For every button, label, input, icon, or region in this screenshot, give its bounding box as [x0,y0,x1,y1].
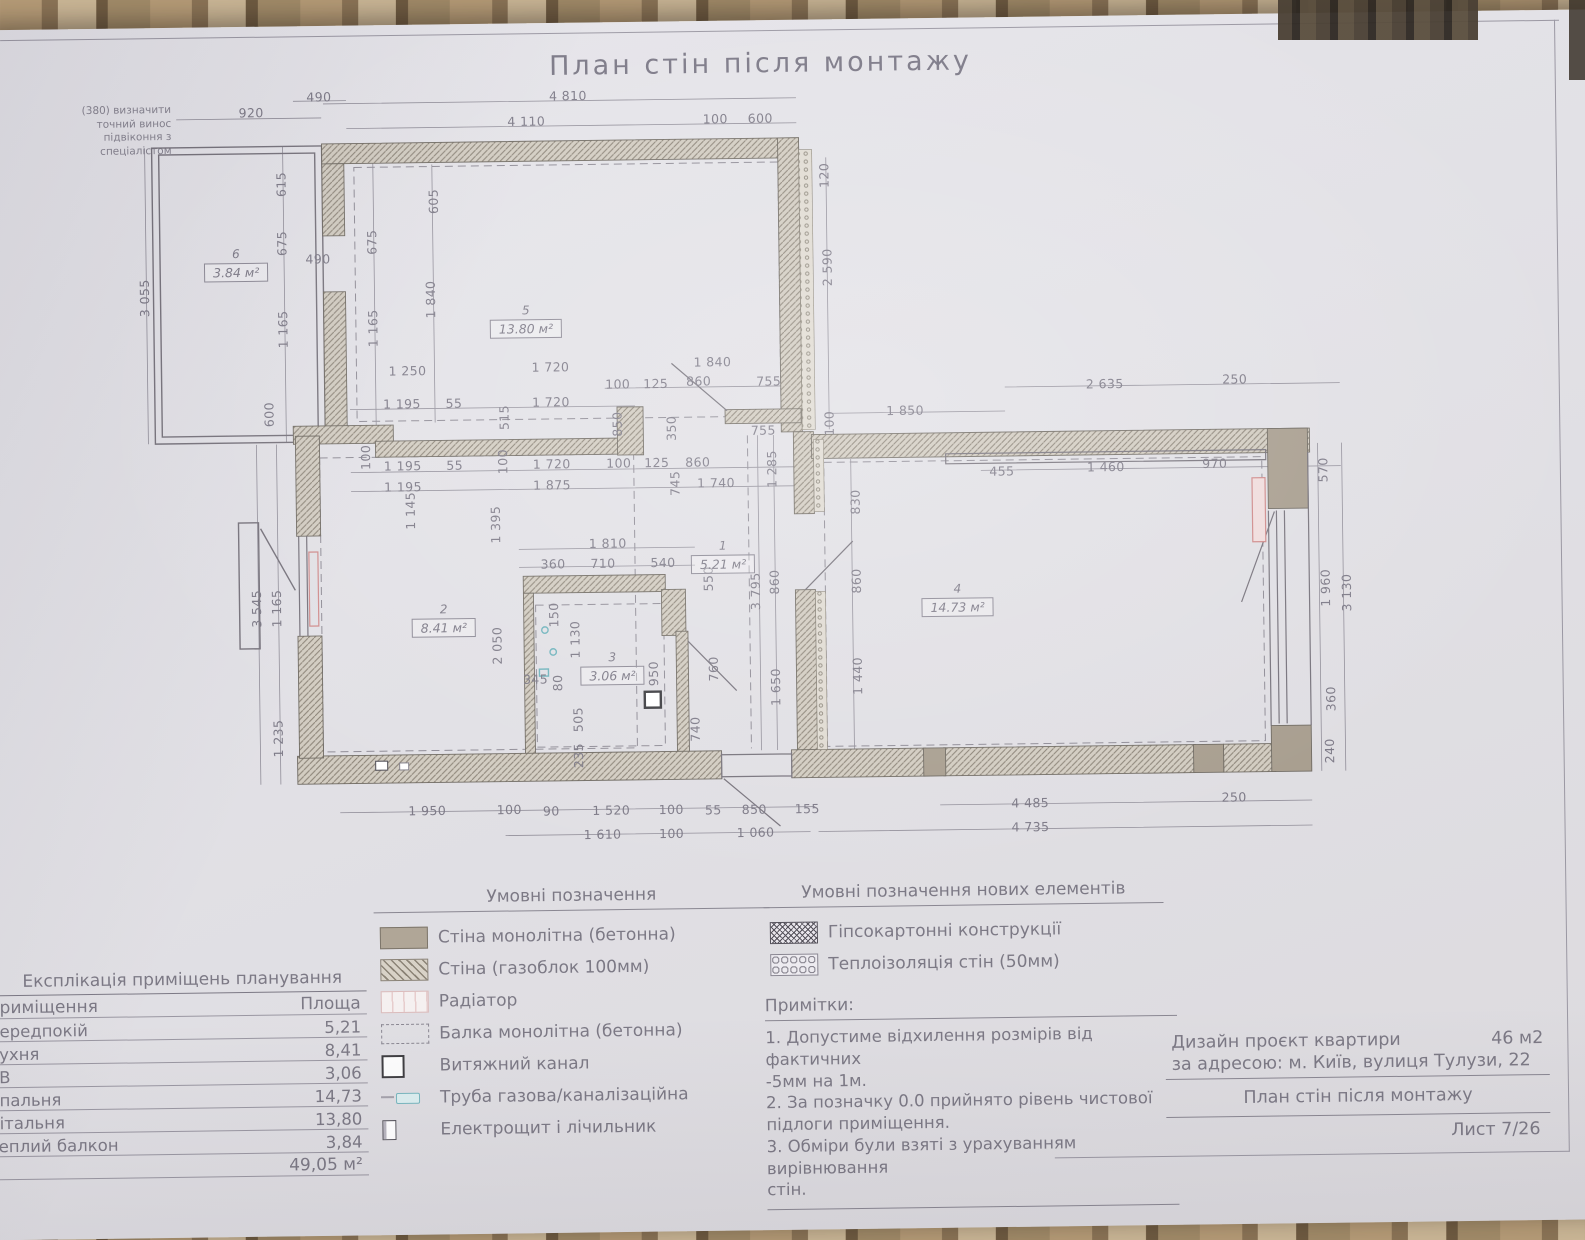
dimension-lines [144,88,1347,841]
room-number: 2 [411,602,475,617]
photo-of-floor-plan-sheet: { "title": "План стін після монтажу", "c… [0,0,1585,1200]
dimension-label: 1 235 [271,720,286,758]
dimension-label: 540 [650,555,675,570]
legend-swatch-cell [376,1119,440,1140]
gas-pipe-icons [539,627,557,676]
room-area-cell: 3,06 [325,1063,362,1082]
legend-swatch-cell [375,1023,439,1044]
dimension-label: 1 520 [592,802,630,817]
dimension-label: 755 [751,423,776,438]
dimension-label: 3 130 [1339,574,1354,612]
dimension-label: 100 [822,411,837,436]
room-name-cell: Кухня [0,1045,40,1065]
dimension-label: 250 [1222,789,1247,804]
room-name-cell: Спальня [0,1090,62,1110]
notes-lines: 1. Допустиме відхилення розмірів від фак… [765,1022,1179,1202]
dimension-label: 1 810 [589,535,627,550]
dimension-label: 860 [767,569,782,594]
legend-item-label: Балка монолітна (бетонна) [439,1020,683,1043]
legend-swatch-cell [374,958,438,981]
dimension-label: 1 060 [737,825,775,840]
dimension-label: 850 [742,802,767,817]
dimension-label: 1 395 [488,506,503,544]
table-rows: Передпокій5,21Кухня8,41СВ3,06Спальня14,7… [0,1014,369,1157]
sheet-content: План стін після монтажу (380) визначити … [0,0,1585,1200]
dimension-label: 100 [659,802,684,817]
notes-title: Примітки: [765,991,1177,1021]
dimension-label: 3 545 [249,590,264,628]
legend-new-items: Гіпсокартонні конструкціїТеплоізоляція с… [764,912,1165,981]
room-area: 3.84 м² [204,263,268,283]
electric-panel-icons [376,761,409,770]
dimension-label: 675 [364,230,379,255]
room-area-cell: 8,41 [325,1041,362,1060]
legend-item-label: Труба газова/каналізаційна [440,1084,689,1107]
room-name-cell: Теплий балкон [0,1136,119,1157]
dimension-label: 490 [306,89,331,104]
room-number: 3 [580,650,644,665]
room-name-cell: Передпокій [0,1021,88,1041]
insulation-swatch-icon [770,954,818,977]
dimension-label: 740 [688,716,703,741]
dimension-label: 1 460 [1087,459,1125,474]
dimension-label: 1 195 [383,396,421,411]
dimension-label: 120 [816,163,831,188]
room-area: 14.73 м² [921,597,993,617]
dimension-label: 1 250 [389,363,427,378]
dimension-label: 250 [1222,371,1247,386]
corner-note: (380) визначити точний винос підвіконня … [63,104,172,160]
dimension-label: 505 [570,707,585,732]
dimension-label: 745 [667,471,682,496]
dimension-label: 100 [358,445,373,470]
legend-swatch-cell [764,953,828,976]
dimension-label: 950 [646,661,661,686]
legend-item: Стіна (газоблок 100мм) [374,949,770,986]
room-number: 1 [691,538,755,553]
dimension-label: 1 610 [584,827,622,842]
dimension-label: 80 [550,674,565,691]
radiator-swatch-icon [381,991,429,1014]
legend-items: Стіна монолітна (бетонна)Стіна (газоблок… [374,917,773,1146]
insulation-strips [799,149,828,749]
dimension-label: 55 [445,396,462,411]
dimension-label: 345 [523,672,548,687]
legend-swatch-cell [376,1092,440,1104]
title-block: Дизайн проєкт квартири 46 м2 за адресою:… [1165,1028,1550,1144]
room-area-cell: 3,84 [326,1132,363,1151]
windows-and-doors [296,355,1312,832]
dimension-label: 100 [497,802,522,817]
legend-item: Балка монолітна (бетонна) [375,1013,771,1050]
curtain-shadow [1278,0,1478,40]
legend-swatch-cell [375,1054,439,1078]
dimension-label: 1 720 [532,394,570,409]
legend-item-label: Гіпсокартонні конструкції [828,919,1062,942]
dimension-label: 1 165 [275,310,290,348]
dimension-label: 710 [590,556,615,571]
dimension-label: 1 840 [693,354,731,369]
dimension-label: 4 735 [1012,819,1050,834]
dimension-label: 1 195 [384,458,422,473]
note-line: 1. Допустиме відхилення розмірів від фак… [765,1022,1178,1071]
dimension-label: 600 [261,402,276,427]
dimension-label: 615 [273,172,288,197]
dimension-label: 860 [685,454,710,469]
dimension-label: 755 [756,373,781,388]
room-area-cell: 14,73 [315,1086,362,1106]
dimension-label: 360 [540,556,565,571]
table-total-row: 49,05 м² [0,1152,369,1180]
room-label: 513.80 м² [490,303,563,339]
dimension-label: 100 [659,826,684,841]
dimension-label: 100 [495,449,510,474]
legend-item: Стіна монолітна (бетонна) [374,917,770,954]
legend-item-label: Стіна (газоблок 100мм) [438,957,649,980]
apartment-area: 46 м2 [1491,1028,1543,1049]
hatch-swatch-icon [380,959,428,982]
dimension-label: 3 055 [137,279,152,317]
page-title: План стін після монтажу [549,45,972,82]
dimension-label: 100 [605,376,630,391]
dimension-label: 970 [1202,456,1227,471]
legend-item-label: Стіна монолітна (бетонна) [438,924,676,947]
note-line: 3. Обміри були взяті з урахуванням вирів… [767,1131,1180,1180]
balcony-windows [152,146,329,650]
dimension-label: 1 875 [533,477,571,492]
dimension-label: 605 [426,189,441,214]
room-number: 6 [204,247,268,262]
room-label: 63.84 м² [204,247,269,283]
solid-swatch-icon [380,927,428,950]
dimension-label: 850 [610,411,625,436]
room-name-cell: СВ [0,1068,11,1087]
dimension-label: 100 [703,111,728,126]
dimension-label: 1 165 [365,309,380,347]
legend-swatch-cell [374,926,438,949]
room-explication-table: Експлікація приміщень планування Приміще… [0,967,369,1180]
sheet-number: Лист 7/26 [1166,1113,1550,1144]
vent-swatch-icon [381,1054,404,1077]
table-col-room: Приміщення [0,997,98,1018]
room-area: 3.06 м² [580,666,644,686]
room-number: 4 [921,581,993,596]
dimension-label: 4 485 [1011,795,1049,810]
drawing-sheet: План стін після монтажу (380) визначити … [0,9,1585,1240]
dimension-label: 2 050 [489,627,504,665]
legend-item-label: Радіатор [439,990,518,1011]
dimension-label: 860 [686,373,711,388]
dimension-label: 150 [546,602,561,627]
dimension-label: 570 [1315,457,1330,482]
legend-item: Гіпсокартонні конструкції [764,912,1164,949]
dashed-swatch-icon [381,1024,429,1045]
dimension-label: 125 [644,455,669,470]
monolithic-beam-outlines [316,156,1266,754]
dimension-label: 1 840 [423,281,438,319]
dimension-label: 125 [643,376,668,391]
dimension-label: 600 [748,111,773,126]
dimension-label: 1 720 [533,456,571,471]
dimension-label: 515 [496,405,511,430]
dimension-label: 90 [543,803,560,818]
dimension-label: 1 850 [886,403,924,418]
room-label: 414.73 м² [921,581,994,617]
panel-swatch-icon [382,1120,396,1140]
dimension-label: 1 720 [531,359,569,374]
dimension-label: 1 960 [1318,569,1333,607]
dimension-label: 4 810 [549,88,587,103]
dimension-label: 1 165 [269,590,284,628]
dimension-label: 2 635 [1086,376,1124,391]
room-label: 33.06 м² [580,650,645,686]
dimension-label: 860 [849,568,864,593]
dimension-label: 360 [1323,686,1338,711]
dimension-label: 155 [795,801,820,816]
project-name: Дизайн проєкт квартири [1171,1030,1401,1053]
legend-item: Теплоізоляція стін (50мм) [764,944,1164,981]
table-total-value: 49,05 м² [289,1154,363,1175]
legend-swatch-cell [764,921,828,944]
dimension-label: 240 [1322,738,1337,763]
dimension-label: 55 [446,458,463,473]
dimension-label: 920 [238,105,263,120]
dimension-label: 1 740 [697,475,735,490]
dimension-label: 1 285 [764,450,779,488]
dimension-label: 2 590 [819,248,834,286]
dimension-label: 235 [571,743,586,768]
curtain-edge [1569,0,1585,80]
table-col-area: Площа [300,994,361,1015]
dimension-label: 1 650 [768,668,783,706]
legend-item-label: Електрощит і лічильник [440,1117,656,1140]
dimension-label: 675 [274,231,289,256]
dimension-label: 3 795 [748,572,763,610]
legend-item: Витяжний канал [375,1045,771,1082]
dimension-label: 760 [706,656,721,681]
legend-item: Труба газова/каналізаційна [376,1077,772,1114]
legend-item: Електрощит і лічильник [376,1109,772,1146]
vent-channel-icon [645,692,661,708]
dimension-label: 1 950 [408,803,446,818]
notes-block: Примітки: 1. Допустиме відхилення розмір… [765,991,1180,1210]
dimension-label: 55 [705,802,722,817]
gasblock-walls [290,131,1314,784]
room-label: 28.41 м² [411,602,476,638]
sheet-frame-right [1554,20,1570,1152]
legend-new-title: Умовні позначення нових елементів [763,878,1163,908]
dimension-label: 350 [664,416,679,441]
legend-new-elements: Умовні позначення нових елементів Гіпсок… [763,878,1164,981]
dimension-label: 455 [989,463,1014,478]
room-area: 13.80 м² [490,319,562,339]
crosshatch-swatch-icon [770,922,818,945]
pipe-swatch-icon [396,1092,420,1103]
legend-swatch-cell [375,990,439,1013]
legend-item: Радіатор [375,981,771,1018]
dimension-label: 830 [848,489,863,514]
legend: Умовні позначення Стіна монолітна (бетон… [373,883,772,1146]
room-area: 8.41 м² [412,618,476,638]
room-label: 15.21 м² [691,538,756,574]
room-area-cell: 5,21 [324,1018,361,1037]
drawing-name: План стін після монтажу [1166,1075,1550,1118]
room-area: 5.21 м² [691,554,755,574]
dimension-label: 4 110 [507,114,545,129]
legend-title: Умовні позначення [373,883,769,913]
room-area-cell: 13,80 [315,1109,362,1129]
dimension-label: 1 440 [850,657,865,695]
dimension-label: 100 [606,455,631,470]
dimension-label: 1 145 [403,492,418,530]
room-number: 5 [490,303,562,318]
legend-item-label: Теплоізоляція стін (50мм) [828,951,1060,974]
legend-item-label: Витяжний канал [439,1054,589,1076]
room-name-cell: Вітальня [0,1113,65,1133]
dimension-label: 490 [305,251,330,266]
